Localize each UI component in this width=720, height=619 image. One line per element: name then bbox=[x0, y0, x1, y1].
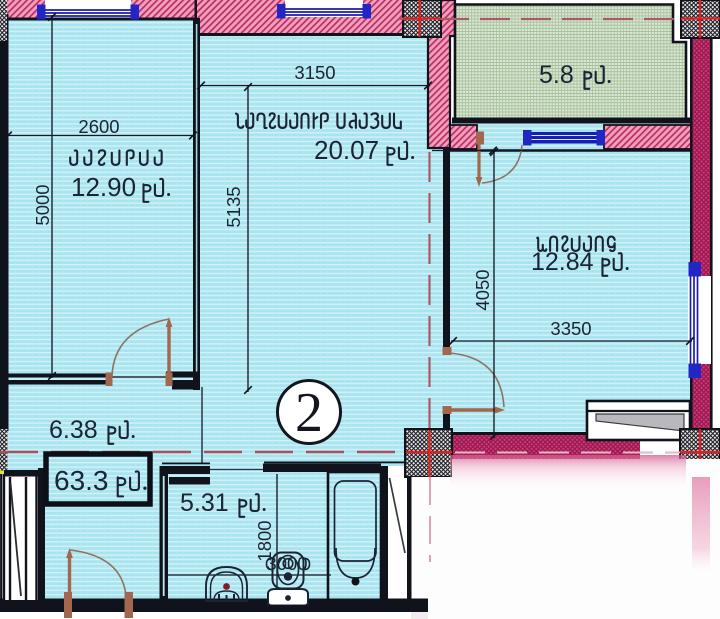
svg-text:12.90: 12.90 bbox=[71, 172, 136, 202]
svg-text:6.38: 6.38 bbox=[49, 416, 98, 444]
svg-text:5.8: 5.8 bbox=[539, 61, 574, 89]
svg-text:1800: 1800 bbox=[254, 520, 275, 561]
svg-text:5135: 5135 bbox=[223, 186, 244, 227]
svg-text:5.31: 5.31 bbox=[180, 489, 229, 517]
svg-text:2: 2 bbox=[295, 382, 323, 444]
svg-text:63.3: 63.3 bbox=[54, 465, 109, 496]
svg-text:4050: 4050 bbox=[472, 269, 493, 310]
svg-text:3350: 3350 bbox=[550, 318, 591, 339]
svg-text:12.84: 12.84 bbox=[531, 248, 594, 276]
svg-text:3150: 3150 bbox=[294, 62, 335, 83]
svg-text:20.07: 20.07 bbox=[314, 135, 379, 165]
svg-text:5000: 5000 bbox=[32, 184, 53, 225]
svg-text:2600: 2600 bbox=[78, 116, 119, 137]
